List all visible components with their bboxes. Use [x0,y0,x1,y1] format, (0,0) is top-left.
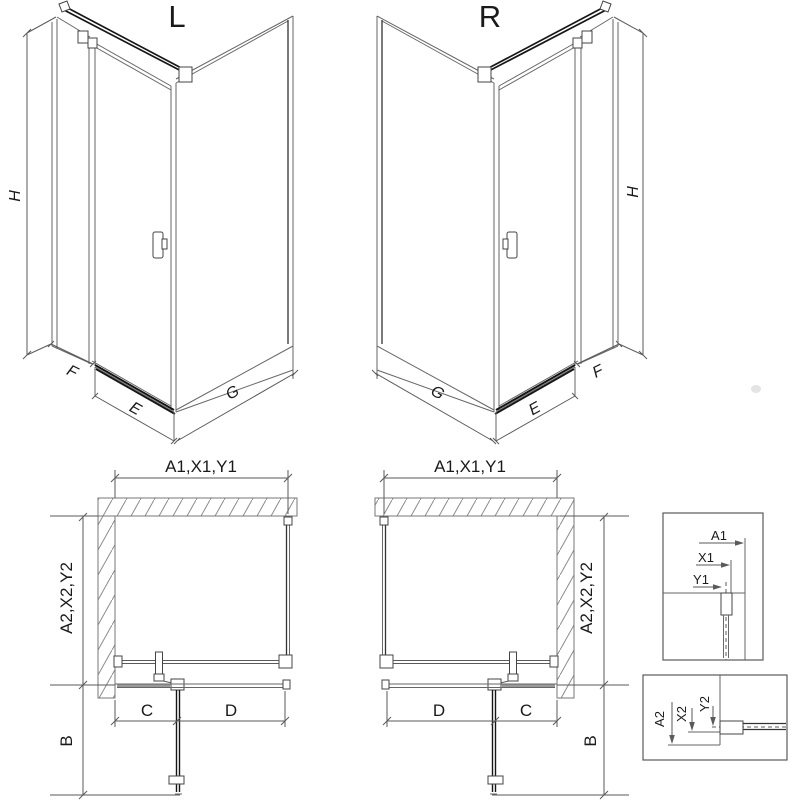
open-door-handle [488,776,503,784]
wall-profile [720,721,743,734]
plan-left-c-dim-label: C [141,701,153,720]
hinge-top-fitting [88,38,97,48]
plan-right-d-dim-label: D [433,701,445,720]
technical-drawing-page: L H F E G R H F E G [0,0,800,800]
wall-section-top [98,498,297,516]
door-handle-knob [162,239,167,249]
plan-left-a1-dim-label: A1,X1,Y1 [165,457,237,476]
bar-clamp [78,31,88,43]
variant-label-left: L [168,0,185,34]
iso-left-e-dim-label: E [126,399,144,419]
iso-right-g-dim-label: G [428,383,447,404]
detail-top-x1-label: X1 [698,550,714,565]
detail-bottom-a2-label: A2 [652,711,667,727]
plan-right-a1-dim-label: A1,X1,Y1 [434,457,506,476]
variant-label-right: R [479,0,501,34]
plan-left-b-dim-label: B [57,735,76,746]
iso-right-f-dim-label: F [590,362,607,382]
bar-tee-fitting [510,652,517,676]
shower-enclosure-drawing: L H F E G R H F E G [0,0,800,800]
detail-top-a1-label: A1 [711,528,727,543]
iso-right-height-dim-label: H [625,186,642,198]
detail-bottom-y2-label: Y2 [697,696,712,712]
iso-left-g-dim-label: G [223,383,242,404]
plan-right-c-dim-label: C [520,701,532,720]
detail-bottom-x2-label: X2 [674,706,689,722]
iso-left-f-dim-label: F [64,362,81,382]
open-door-handle [169,776,184,784]
corner-bracket [179,67,192,82]
bar-end-cap [59,1,70,12]
detail-top-y1-label: Y1 [693,572,709,587]
plan-right-a2-dim-label: A2,X2,Y2 [577,562,596,634]
bar-tee-fitting [156,652,163,676]
plan-view-left [50,470,297,799]
iso-left-height-dim-label: H [7,190,24,202]
iso-right-e-dim-label: E [526,399,544,419]
wall-profile [721,593,732,615]
plan-right-b-dim-label: B [581,735,600,746]
plan-left-a2-dim-label: A2,X2,Y2 [57,562,76,634]
wall-section-right [557,516,574,698]
wall-section-top [375,498,574,516]
wall-section-left [98,516,115,698]
watermark-dot [751,385,761,393]
plan-left-d-dim-label: D [225,701,237,720]
